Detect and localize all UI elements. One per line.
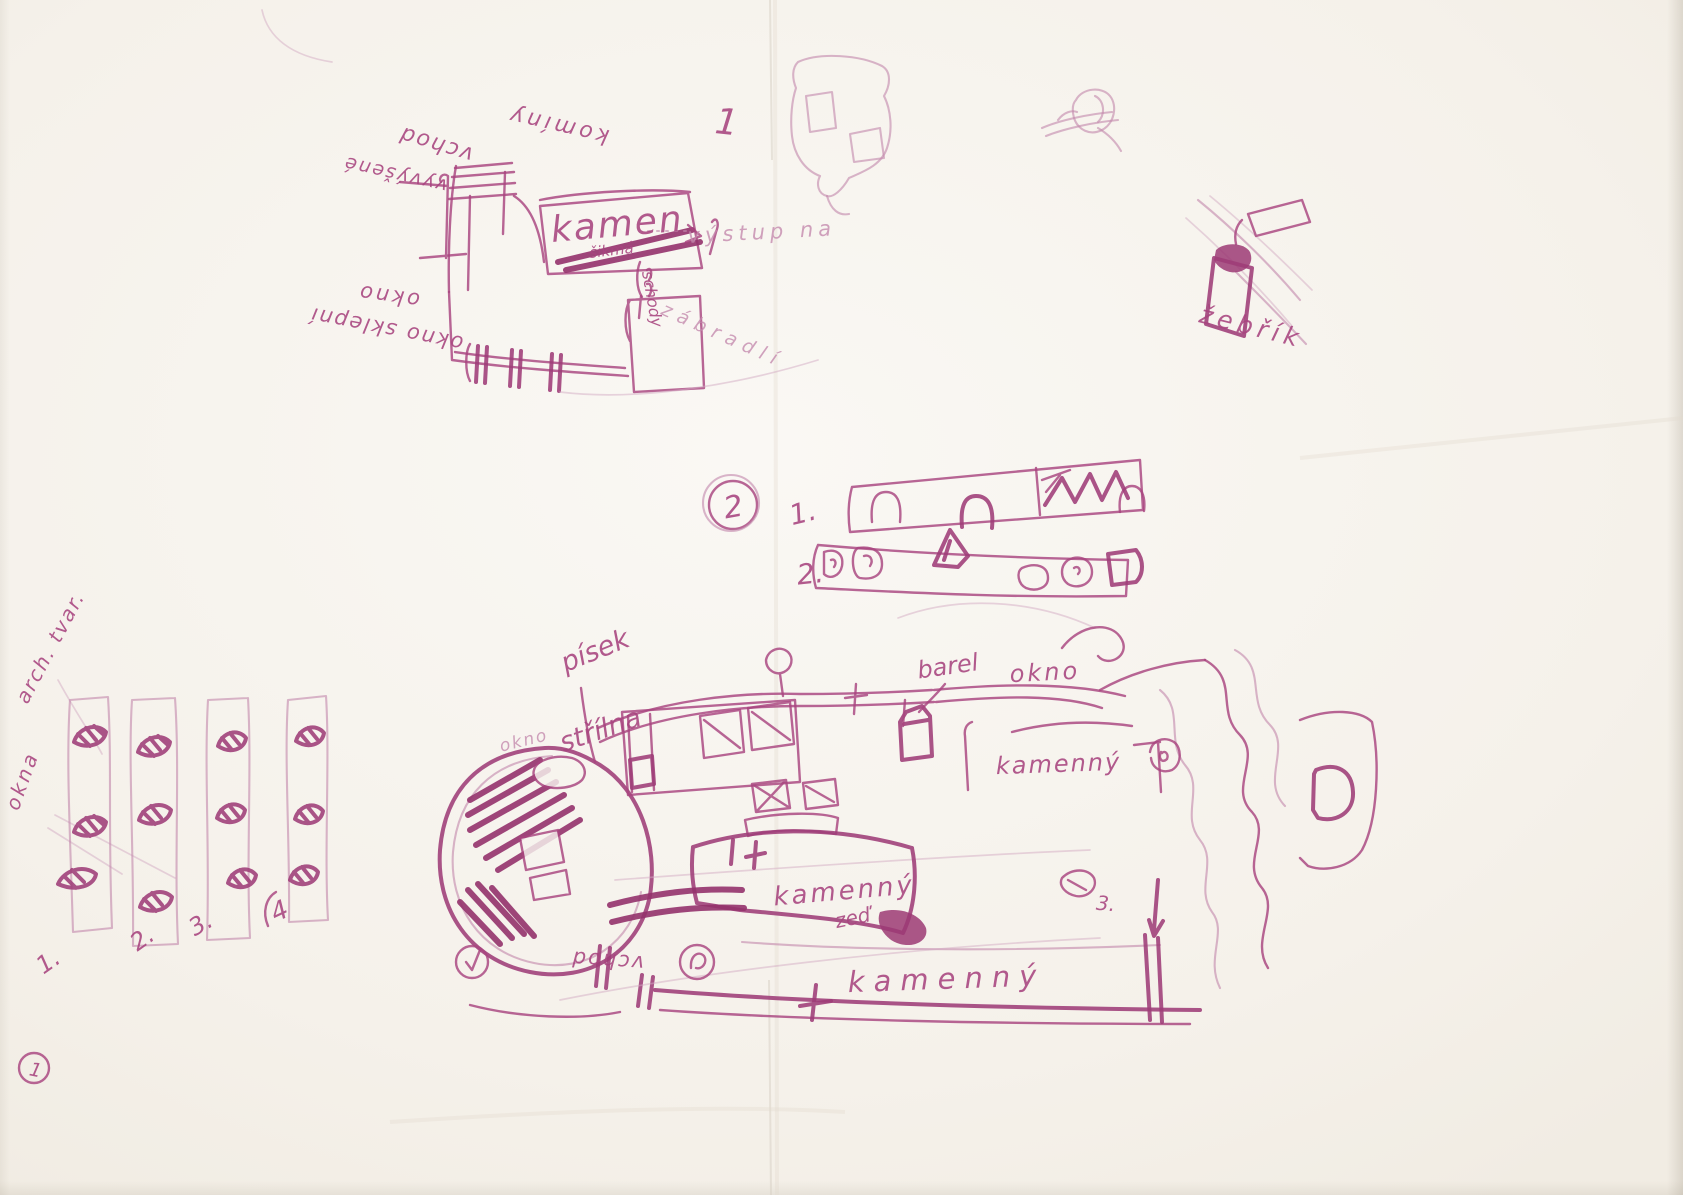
- profiles-section: 2 1. 2.: [703, 460, 1144, 596]
- ladder-top-plank: [1248, 200, 1310, 236]
- label-kamenny-room: kamenný: [995, 748, 1121, 780]
- label-marker-3: 3.: [1095, 891, 1116, 917]
- scanned-sketch-page: komíny vchod vyvýšené okno okno sklepní …: [0, 0, 1683, 1195]
- round-tower: [440, 748, 652, 1017]
- windows-study: arch. tvar. okna 1. 2. 3. 4: [0, 587, 328, 980]
- top-wall-tick: [845, 684, 867, 714]
- tower-inner-rooms: [520, 830, 570, 900]
- page-corner-marker: 1: [19, 1053, 49, 1083]
- top-wall: [598, 690, 934, 742]
- circle-on-stem: [766, 649, 791, 696]
- tower-hatch-lower: [460, 884, 534, 944]
- label-barel: barel: [916, 648, 981, 684]
- label-pisek: písek: [556, 623, 636, 679]
- stone-triangle: [934, 530, 968, 567]
- barel-pointer: [919, 684, 945, 712]
- row2-number: 2.: [795, 556, 825, 592]
- strip2-number: 2.: [125, 921, 160, 957]
- label-vystup: výstup na: [687, 216, 837, 248]
- rock-doodle: [1061, 871, 1095, 897]
- circled-marker-left: [456, 946, 488, 978]
- small-doodle-sketch: [1042, 90, 1121, 151]
- label-okno-top: okno: [1009, 657, 1081, 689]
- spiral-doodle: [1150, 739, 1180, 771]
- room-bracket-left: [965, 722, 972, 790]
- ladder-sketch: žebřík: [1186, 196, 1312, 353]
- paper-crease-lines: [262, 0, 1683, 1195]
- castle-plan: písek střílna okno barel okno kamenný ka…: [440, 603, 1377, 1024]
- terrain-blob-sketch: 1: [713, 56, 890, 214]
- room-bracket-right: [1134, 742, 1161, 792]
- row1-number: 1.: [786, 494, 820, 532]
- wall-dark-blob: [879, 910, 927, 945]
- label-zabradli: zábradlí: [657, 298, 787, 372]
- window-ticks: [476, 346, 561, 391]
- right-room: [900, 684, 1180, 936]
- tower-roof-bands: [449, 163, 516, 199]
- circled-marker-right: [680, 945, 714, 979]
- top-right-loop: [1062, 627, 1124, 661]
- tower-top-oval: [533, 757, 584, 788]
- inner-d: [1313, 767, 1353, 819]
- corner-fold-mark: [262, 10, 332, 62]
- label-vyvysene: vyvýšené: [341, 152, 450, 197]
- section2-number: 2: [721, 489, 746, 527]
- d-shape-doodle: [1300, 712, 1377, 869]
- label-kamenna-zed-1: kamenný: [772, 870, 916, 912]
- label-strilna: střílna: [556, 702, 646, 759]
- blob-outline: [791, 56, 890, 196]
- page-number: 1: [27, 1058, 43, 1082]
- strip1-number: 1.: [31, 944, 66, 980]
- strip3-number: 3.: [184, 906, 218, 942]
- thick-wall: [610, 890, 744, 922]
- windows-side-label: okna: [0, 748, 43, 813]
- sketch-canvas: komíny vchod vyvýšené okno okno sklepní …: [0, 0, 1683, 1195]
- label-okno-sklepni: okno sklepní: [306, 302, 465, 356]
- arrow-marker: [1149, 880, 1163, 936]
- label-zebrik: žebřík: [1196, 299, 1307, 353]
- label-kominy: komíny: [504, 101, 612, 149]
- dark-square: [630, 756, 654, 788]
- windows-heading: arch. tvar.: [11, 587, 90, 707]
- guard-room: [622, 700, 838, 868]
- label-kamenny-wall: kamenný: [847, 958, 1046, 999]
- label-vchod: vchod: [396, 121, 476, 167]
- label-okno: okno: [355, 280, 421, 313]
- label-vchod-plan: vchod: [570, 946, 645, 975]
- sketch1-number: 1: [713, 101, 740, 144]
- elevation-sketch: komíny vchod vyvýšené okno okno sklepní …: [306, 101, 836, 395]
